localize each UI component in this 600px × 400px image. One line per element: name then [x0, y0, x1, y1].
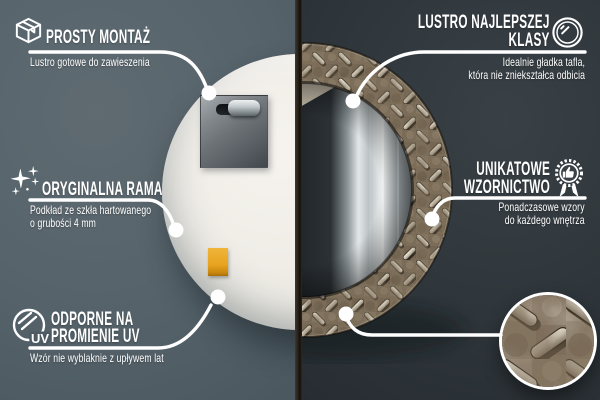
orange-sticker	[208, 248, 228, 276]
callout-subtitle-line2: do każdego wnętrza	[499, 214, 585, 227]
callout-mirror-quality-sub: Idealnie gładka tafla, która nie znieksz…	[423, 56, 585, 81]
round-mirror-icon	[550, 15, 585, 50]
callout-unique-design-sub: Ponadczasowe wzory do każdego wnętrza	[465, 201, 585, 226]
callout-mirror-quality: LUSTRO NAJLEPSZEJ KLASY	[337, 14, 550, 50]
uv-mirror-icon: UV	[10, 306, 52, 348]
callout-uv-resistant-sub: Wzór nie wyblaknie z upływem lat	[30, 352, 216, 365]
award-badge-icon	[551, 158, 587, 204]
photo-split-divider	[295, 0, 302, 400]
package-box-icon	[12, 15, 45, 48]
callout-subtitle: Wzór nie wyblaknie z upływem lat	[30, 352, 164, 365]
callout-title-line2: WZORNICTWO	[464, 179, 550, 197]
product-infographic: PROSTY MONTAŻ Lustro gotowe do zawieszen…	[0, 0, 600, 400]
callout-subtitle-line2: o grubości 4 mm	[30, 217, 151, 230]
callout-subtitle-line2: która nie zniekształca odbicia	[468, 69, 585, 82]
callout-simple-assembly-sub: Lustro gotowe do zawieszenia	[30, 56, 196, 69]
callout-simple-assembly: PROSTY MONTAŻ	[46, 29, 214, 47]
callout-title: PROSTY MONTAŻ	[46, 29, 150, 47]
uv-label: UV	[31, 331, 49, 346]
hanger-bracket	[228, 100, 260, 116]
sparkles-icon	[9, 164, 42, 197]
callout-unique-design: UNIKATOWE WZORNICTWO	[411, 161, 550, 197]
callout-title-line2: PROMIENIE UV	[51, 328, 140, 345]
frame-texture-detail-circle	[499, 292, 597, 390]
callout-subtitle: Lustro gotowe do zawieszenia	[30, 56, 150, 69]
callout-original-frame: ORYGINALNA RAMA	[42, 181, 237, 199]
callout-title: ORYGINALNA RAMA	[42, 181, 163, 199]
callout-title-line2: KLASY	[418, 32, 550, 50]
texture-detail-image	[502, 295, 594, 387]
callout-original-frame-sub: Podkład ze szkła hartowanego o grubości …	[30, 204, 198, 229]
hanger-plate	[200, 95, 268, 168]
callout-uv-resistant: ODPORNE NA PROMIENIE UV	[51, 311, 194, 345]
